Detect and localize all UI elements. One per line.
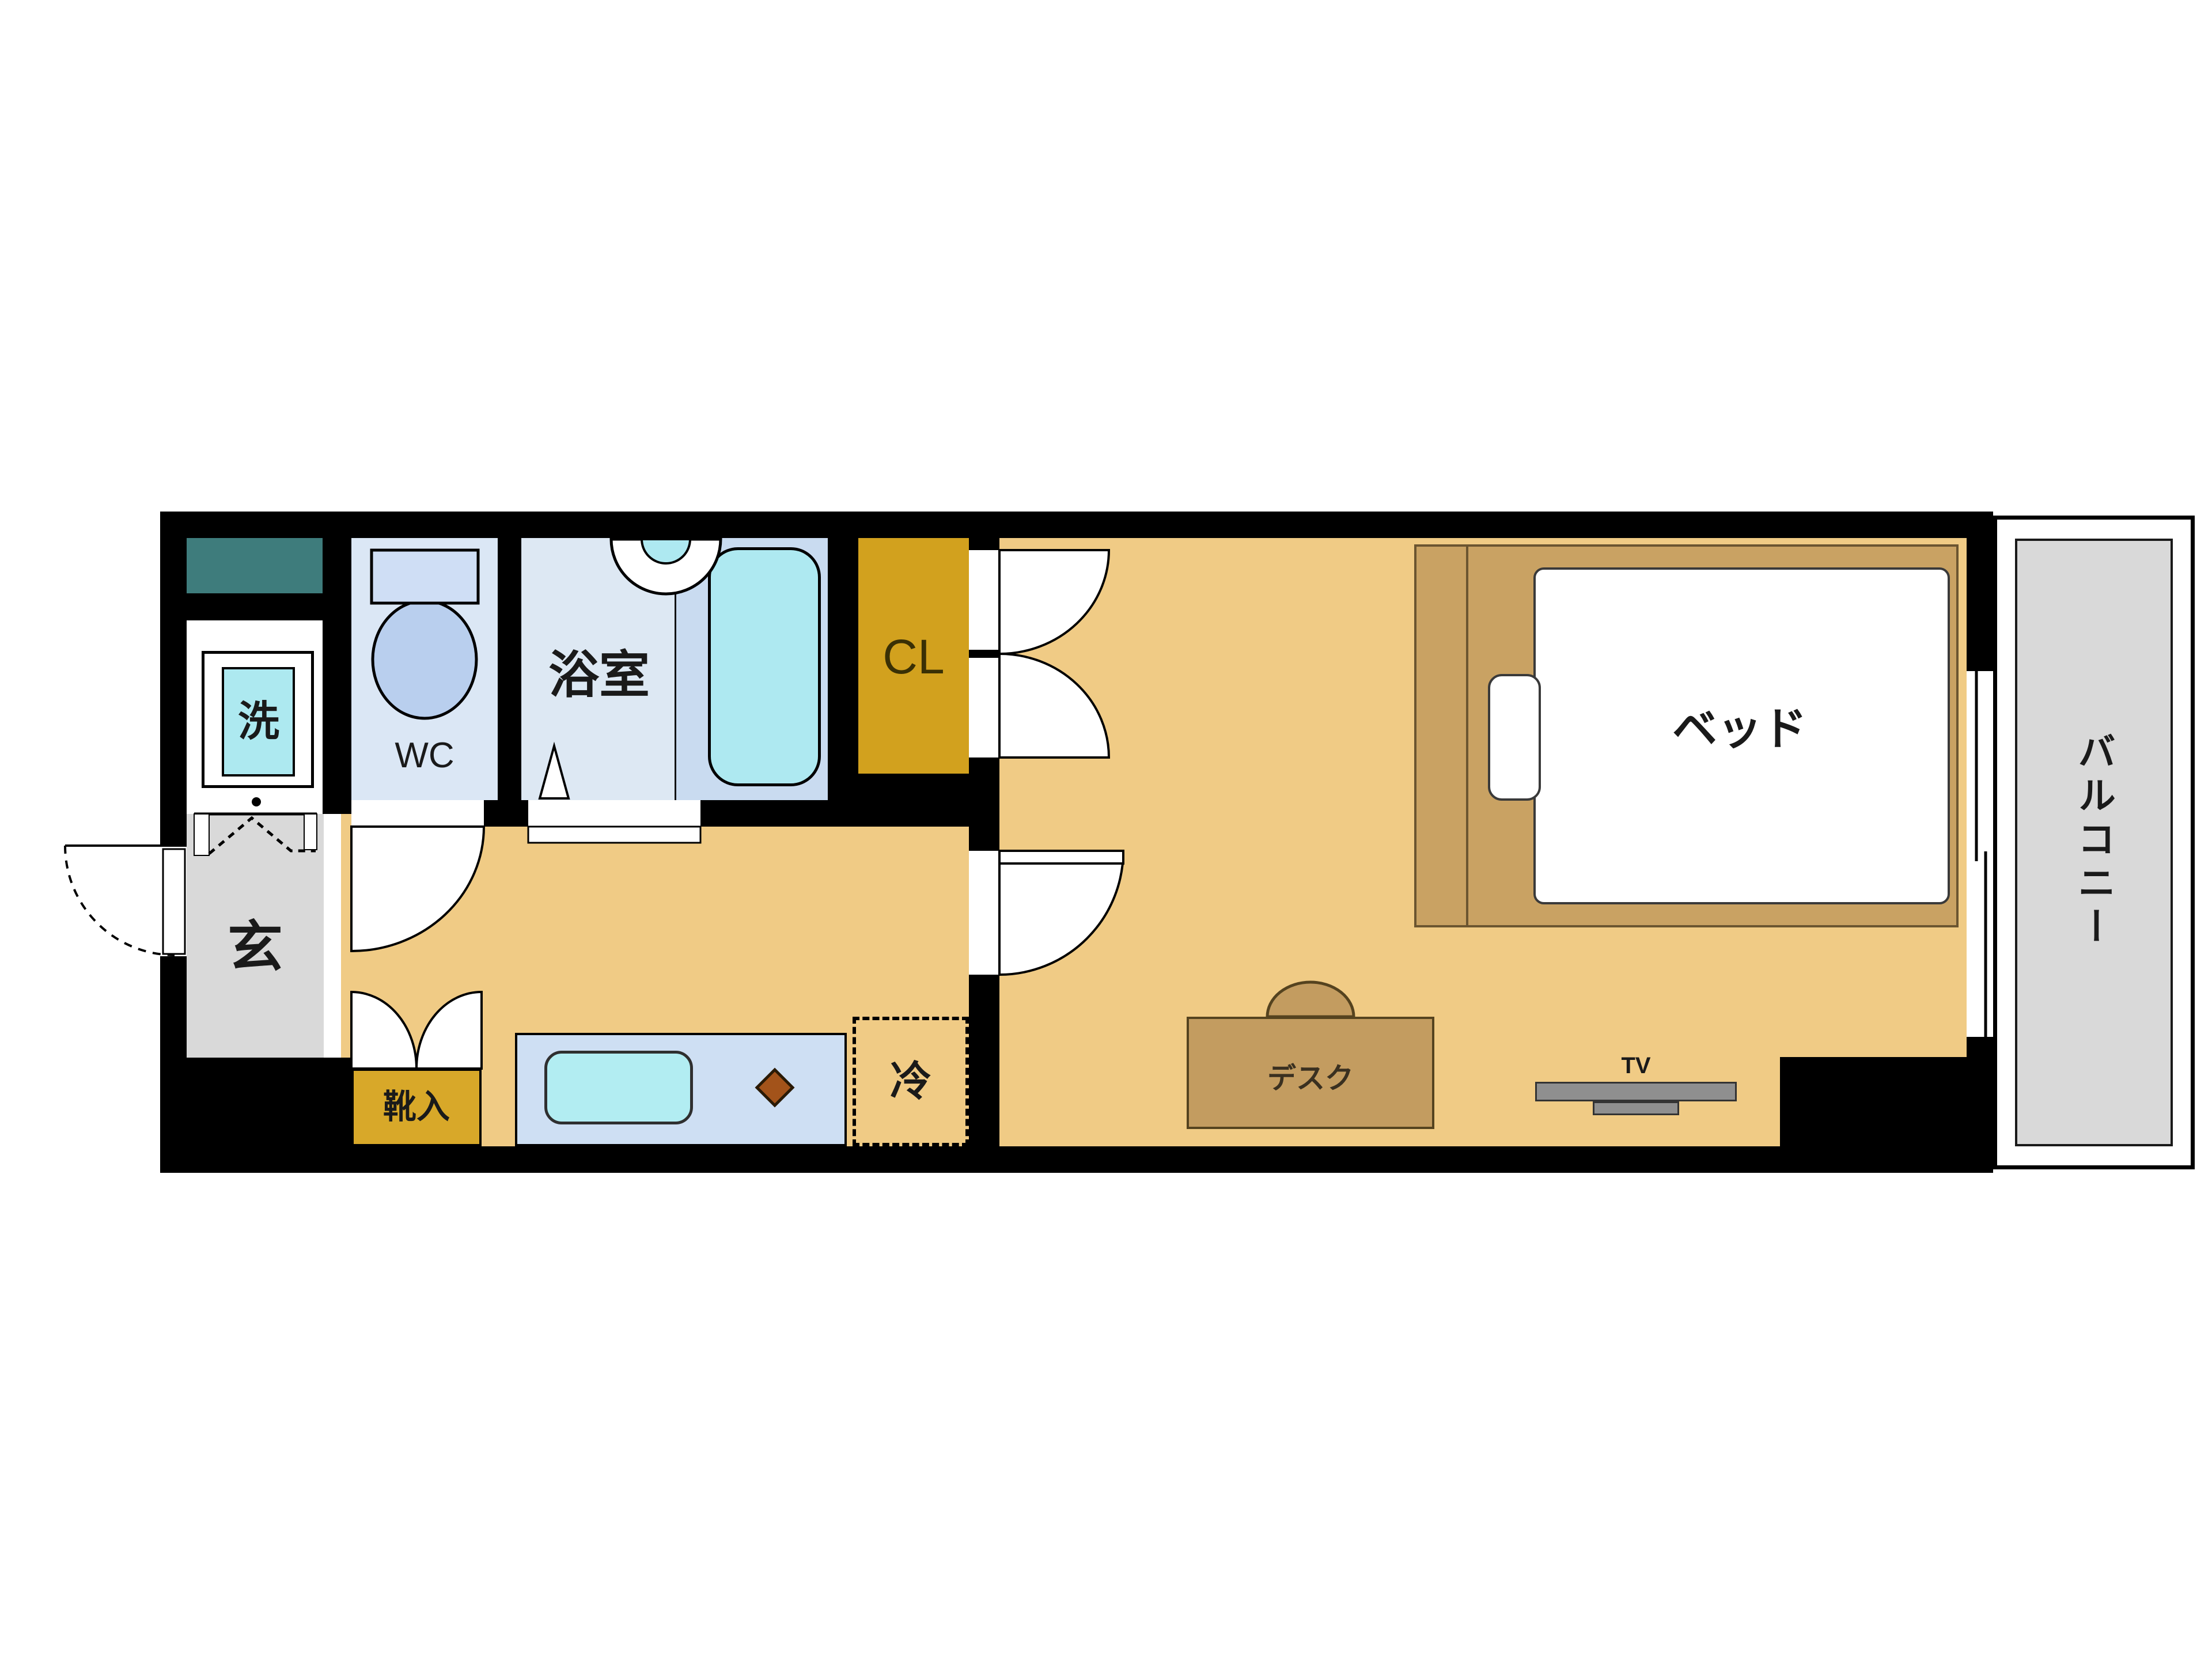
label-entrance: 玄: [228, 920, 283, 975]
opening-balcony-window: [1967, 671, 1993, 1037]
kitchen-sink: [544, 1051, 693, 1124]
wall-laundry-wc: [323, 512, 351, 814]
opening-wc-door: [351, 800, 484, 827]
opening-living-door: [969, 851, 999, 975]
wall-bottom: [160, 1146, 1993, 1173]
bed-pillow: [1488, 674, 1541, 801]
label-balcony: バルコニー: [2075, 732, 2113, 950]
label-desk: デスク: [1267, 1064, 1354, 1093]
wall-closet-under: [858, 774, 969, 800]
tv-unit: [1535, 1082, 1737, 1101]
wall-top: [160, 512, 1993, 538]
opening-bath-door: [528, 800, 700, 827]
wall-notch-bottom-right: [1780, 1057, 1967, 1173]
tv-stand-base: [1593, 1101, 1679, 1115]
label-refrigerator: 冷: [890, 1061, 931, 1103]
label-laundry: 洗: [238, 701, 279, 743]
laundry-counter: [187, 536, 323, 593]
label-wc: WC: [395, 738, 454, 774]
opening-entrance-door: [160, 847, 187, 956]
wall-bath-closet: [828, 512, 858, 827]
bed-headboard-line: [1466, 546, 1468, 926]
label-bath: 浴室: [548, 650, 650, 700]
wall-wc-bath: [498, 512, 521, 827]
wall-under-teal: [187, 593, 323, 620]
wall-block-bottom-left: [160, 1058, 351, 1173]
label-closet: CL: [882, 632, 944, 681]
bath-zone-divider: [675, 538, 676, 800]
label-shoe-storage: 靴入: [383, 1090, 450, 1124]
entrance-step: [324, 814, 341, 1058]
label-tv: TV: [1621, 1054, 1650, 1077]
floorplan-page: { "plan": { "type": "apartment-floor-pla…: [0, 0, 2212, 1659]
label-bed: ベッド: [1672, 706, 1807, 751]
opening-closet-doors: [969, 550, 999, 757]
laundry-folding-door-band: [187, 789, 323, 814]
bathtub: [708, 547, 821, 786]
entrance-door-swing-arc: [65, 846, 175, 955]
